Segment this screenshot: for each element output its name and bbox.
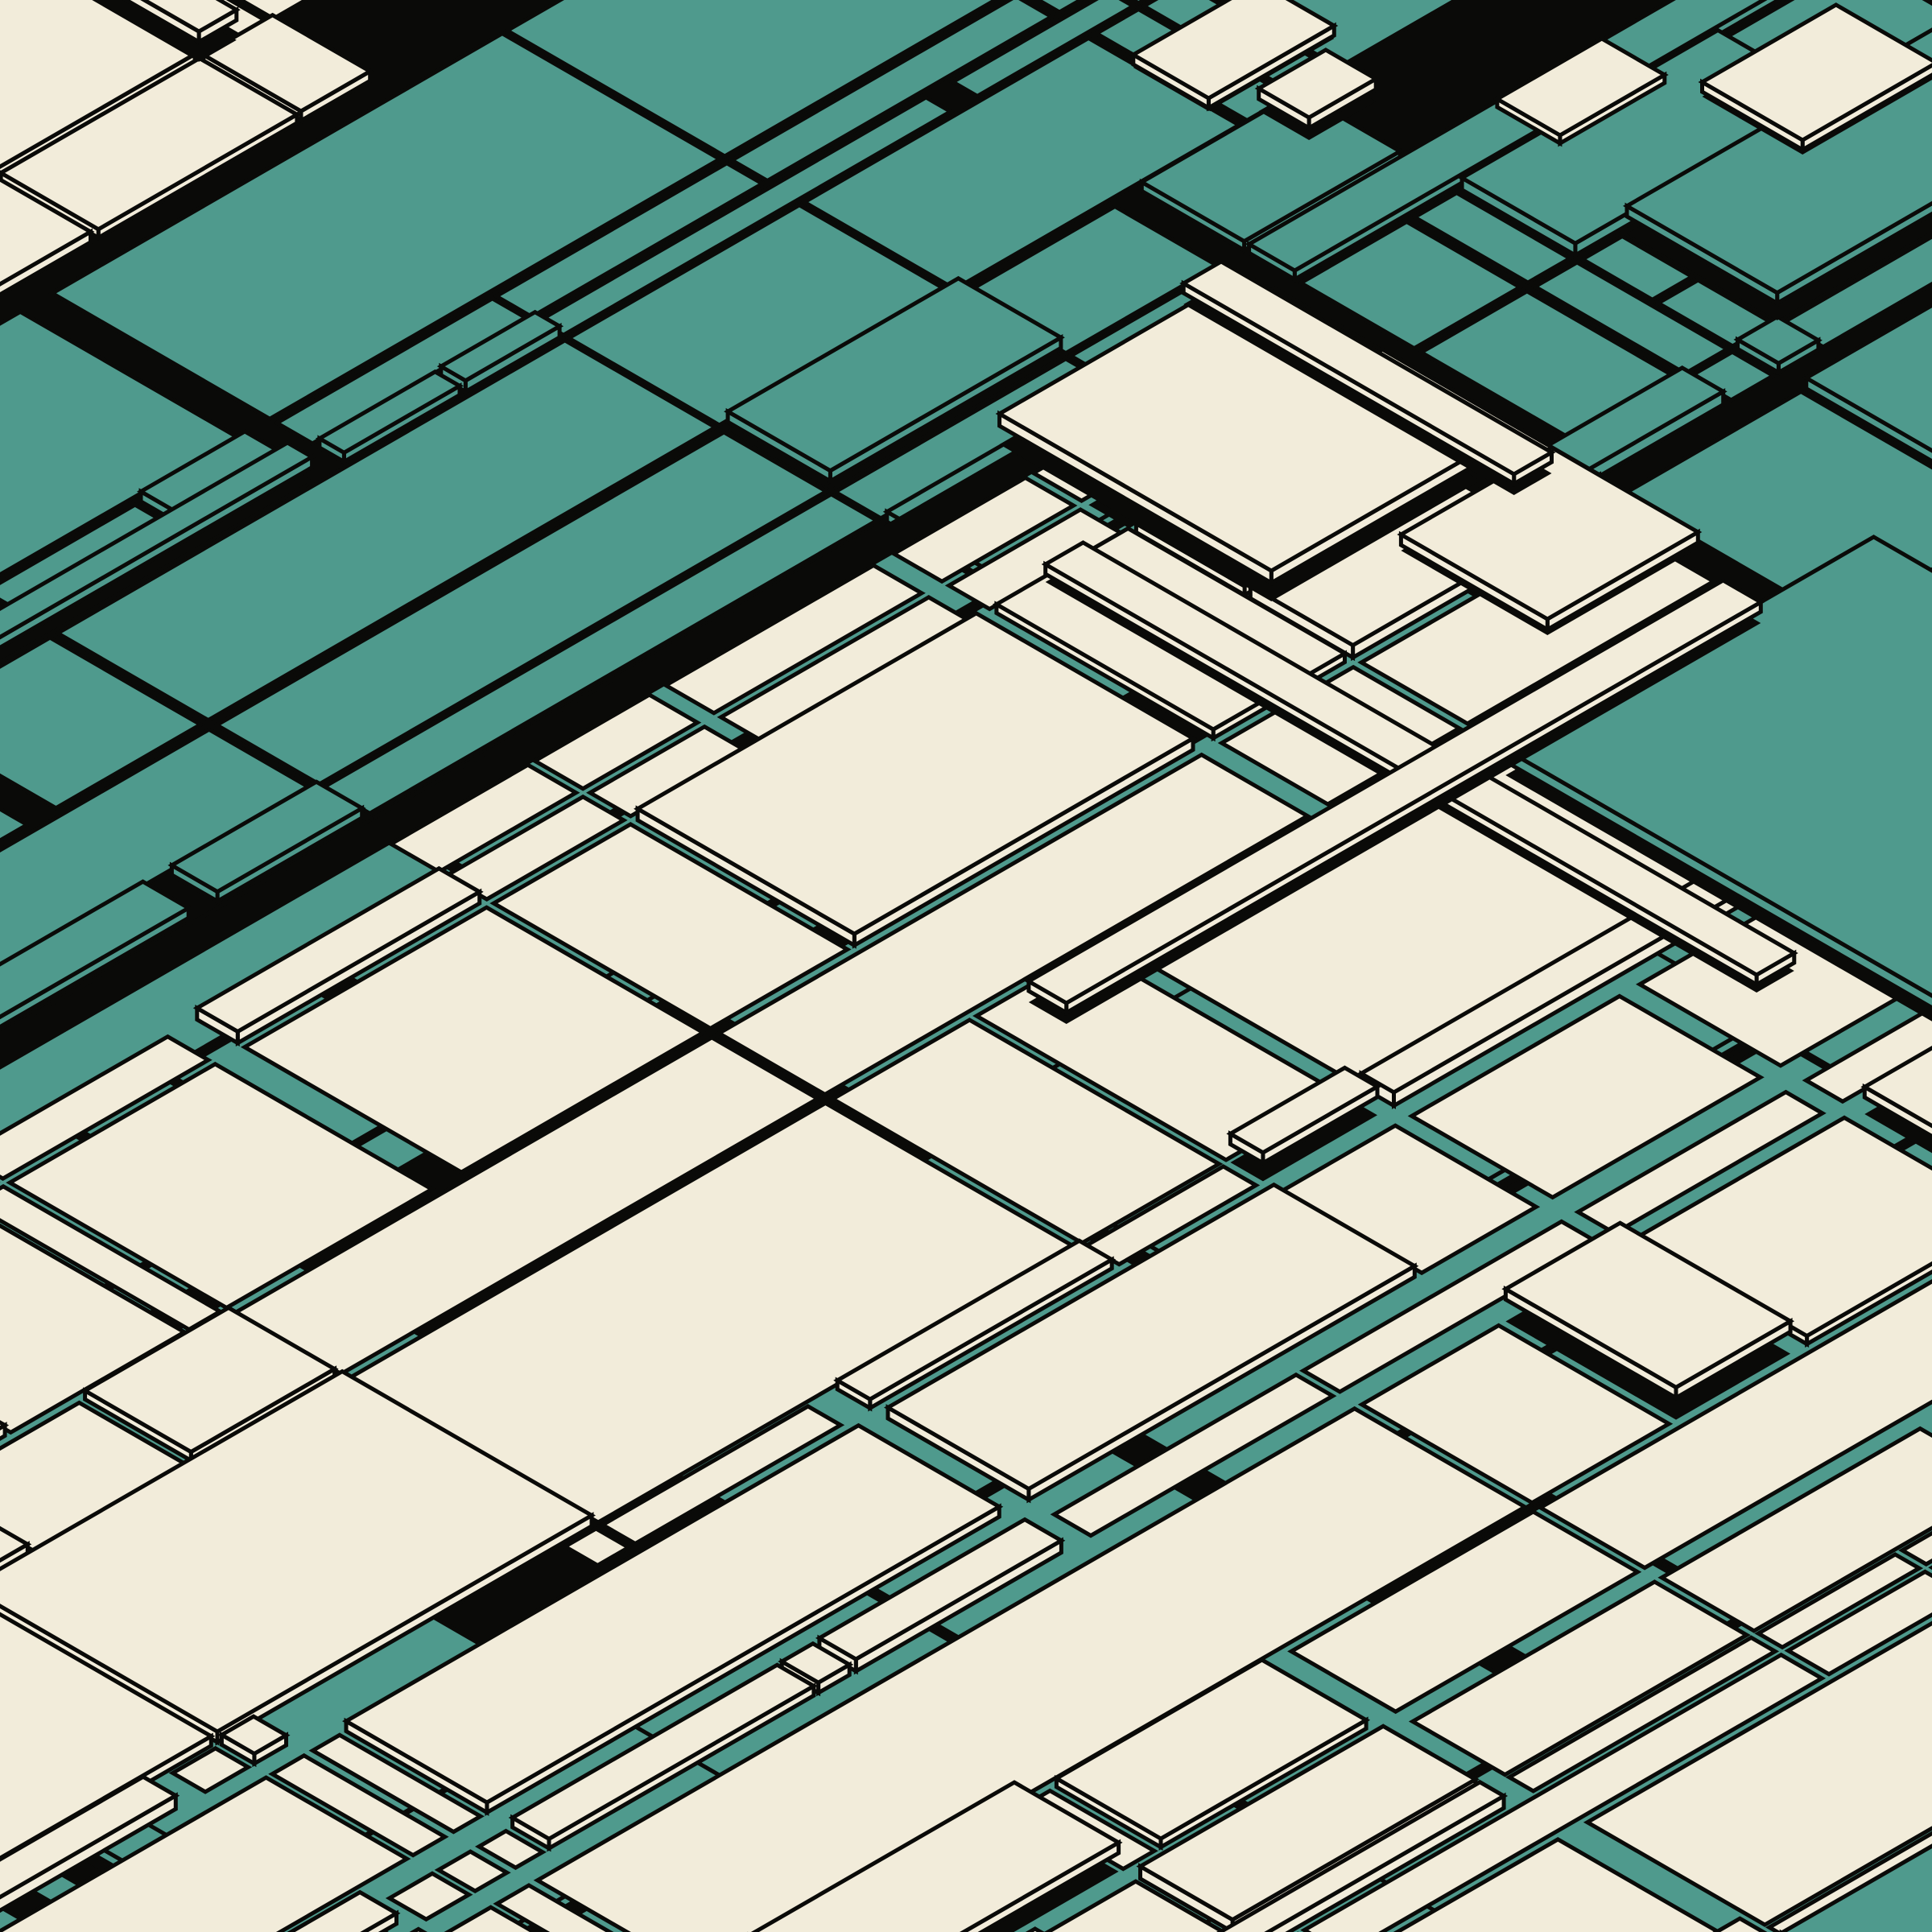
isometric-pattern-canvas (0, 0, 1932, 1932)
isometric-artwork (0, 0, 1932, 1932)
